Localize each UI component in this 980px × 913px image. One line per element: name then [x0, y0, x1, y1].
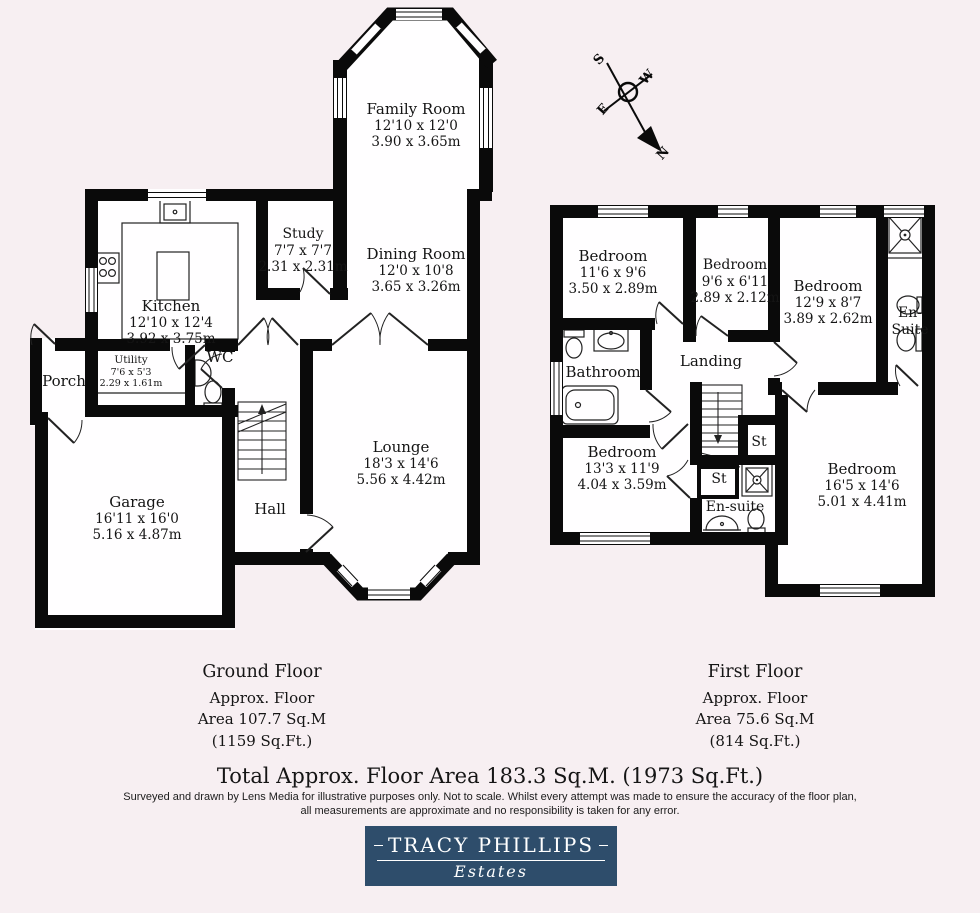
- room-dims-imperial: 12'10 x 12'4: [126, 315, 215, 331]
- room-dims-imperial: 11'6 x 9'6: [568, 265, 657, 281]
- room-name: Lounge: [356, 438, 445, 456]
- disclaimer: Surveyed and drawn by Lens Media for ill…: [123, 790, 857, 819]
- room-dims-imperial: 12'0 x 10'8: [367, 263, 466, 279]
- room-name: Hall: [254, 500, 286, 518]
- room-label-wc: WC: [207, 348, 234, 366]
- room-label-hall: Hall: [254, 500, 286, 518]
- room-name: Bedroom: [577, 443, 666, 461]
- room-label-porch: Porch: [42, 372, 86, 390]
- first-floor-title-block: First Floor Approx. Floor Area 75.6 Sq.M…: [696, 662, 815, 752]
- room-dims-metric: 2.89 x 2.12m: [690, 290, 779, 306]
- room-label-bedroom3: Bedroom 12'9 x 8'7 3.89 x 2.62m: [783, 277, 872, 327]
- logo-ornament-line: [599, 845, 608, 846]
- room-label-bedroom4: Bedroom 13'3 x 11'9 4.04 x 3.59m: [577, 443, 666, 493]
- floorplan-page: S W E N Family Room 12'10 x 12'0 3.90 x …: [0, 0, 980, 913]
- floor-area-sqm: Area 75.6 Sq.M: [696, 709, 815, 730]
- room-label-dining-room: Dining Room 12'0 x 10'8 3.65 x 3.26m: [367, 245, 466, 295]
- room-name: WC: [207, 348, 234, 366]
- room-dims-metric: 3.89 x 2.62m: [783, 311, 872, 327]
- room-dims-metric: 2.29 x 1.61m: [100, 378, 163, 389]
- room-name: Bedroom: [568, 247, 657, 265]
- room-dims-metric: 3.50 x 2.89m: [568, 281, 657, 297]
- room-name: Dining Room: [367, 245, 466, 263]
- room-dims-imperial: 7'6 x 5'3: [100, 367, 163, 378]
- room-label-study: Study 7'7 x 7'7 2.31 x 2.31m: [258, 226, 347, 275]
- room-name: Landing: [680, 352, 742, 370]
- disclaimer-line-2: all measurements are approximate and no …: [123, 804, 857, 818]
- ground-floor-title-block: Ground Floor Approx. Floor Area 107.7 Sq…: [198, 662, 326, 752]
- floor-approx-line: Approx. Floor: [198, 688, 326, 709]
- room-dims-imperial: 13'3 x 11'9: [577, 461, 666, 477]
- room-name: Suite: [892, 322, 929, 339]
- room-label-landing: Landing: [680, 352, 742, 370]
- room-label-garage: Garage 16'11 x 16'0 5.16 x 4.87m: [92, 493, 181, 543]
- logo-division-name: Estates: [365, 862, 617, 881]
- room-name: St: [711, 471, 726, 488]
- room-name: Garage: [92, 493, 181, 511]
- room-label-kitchen: Kitchen 12'10 x 12'4 3.92 x 3.75m: [126, 297, 215, 347]
- room-name: Family Room: [367, 100, 466, 118]
- compass-south-label: S: [591, 51, 608, 68]
- room-dims-metric: 3.65 x 3.26m: [367, 279, 466, 295]
- room-dims-imperial: 9'6 x 6'11: [690, 274, 779, 290]
- floor-area-sqft: (814 Sq.Ft.): [696, 731, 815, 752]
- room-dims-imperial: 16'5 x 14'6: [817, 478, 906, 494]
- room-dims-metric: 5.01 x 4.41m: [817, 494, 906, 510]
- room-label-bedroom5: Bedroom 16'5 x 14'6 5.01 x 4.41m: [817, 460, 906, 510]
- room-label-ensuite-top: En- Suite: [892, 305, 929, 339]
- room-name: Porch: [42, 372, 86, 390]
- room-dims-metric: 5.16 x 4.87m: [92, 527, 181, 543]
- room-name: Bedroom: [783, 277, 872, 295]
- room-dims-imperial: 7'7 x 7'7: [258, 243, 347, 259]
- compass-west-label: W: [636, 67, 658, 89]
- room-label-bedroom1: Bedroom 11'6 x 9'6 3.50 x 2.89m: [568, 247, 657, 297]
- room-name: Utility: [100, 354, 163, 367]
- room-name: Bedroom: [817, 460, 906, 478]
- total-floor-area: Total Approx. Floor Area 183.3 Sq.M. (19…: [217, 764, 763, 788]
- room-label-lounge: Lounge 18'3 x 14'6 5.56 x 4.42m: [356, 438, 445, 488]
- room-label-bedroom2: Bedroom 9'6 x 6'11 2.89 x 2.12m: [690, 257, 779, 306]
- floor-title: First Floor: [696, 662, 815, 682]
- room-name: Study: [258, 226, 347, 243]
- room-dims-metric: 4.04 x 3.59m: [577, 477, 666, 493]
- room-label-ensuite-bottom: En-suite: [706, 499, 765, 516]
- room-name: Bedroom: [690, 257, 779, 274]
- logo-brand-name: TRACY PHILLIPS: [388, 833, 594, 857]
- room-dims-metric: 5.56 x 4.42m: [356, 472, 445, 488]
- room-dims-imperial: 16'11 x 16'0: [92, 511, 181, 527]
- logo-ornament-line: [374, 845, 383, 846]
- disclaimer-line-1: Surveyed and drawn by Lens Media for ill…: [123, 790, 857, 804]
- room-label-family-room: Family Room 12'10 x 12'0 3.90 x 3.65m: [367, 100, 466, 150]
- room-label-st-upper: St: [751, 434, 766, 451]
- agency-logo: TRACY PHILLIPS Estates: [365, 826, 617, 886]
- room-name: En-: [892, 305, 929, 322]
- compass-rose: S W E N: [591, 51, 673, 163]
- room-dims-imperial: 12'10 x 12'0: [367, 118, 466, 134]
- room-name: En-suite: [706, 499, 765, 516]
- floor-area-sqm: Area 107.7 Sq.M: [198, 709, 326, 730]
- floor-area-sqft: (1159 Sq.Ft.): [198, 731, 326, 752]
- floor-title: Ground Floor: [198, 662, 326, 682]
- room-name: St: [751, 434, 766, 451]
- compass-east-label: E: [595, 101, 613, 118]
- room-label-utility: Utility 7'6 x 5'3 2.29 x 1.61m: [100, 354, 163, 389]
- room-dims-metric: 3.92 x 3.75m: [126, 331, 215, 347]
- room-dims-metric: 3.90 x 3.65m: [367, 134, 466, 150]
- logo-divider-line: [377, 860, 605, 861]
- room-name: Kitchen: [126, 297, 215, 315]
- room-label-bathroom: Bathroom: [565, 363, 640, 381]
- floor-approx-line: Approx. Floor: [696, 688, 815, 709]
- room-dims-metric: 2.31 x 2.31m: [258, 259, 347, 275]
- room-name: Bathroom: [565, 363, 640, 381]
- room-dims-imperial: 12'9 x 8'7: [783, 295, 872, 311]
- room-label-st-lower: St: [711, 471, 726, 488]
- room-dims-imperial: 18'3 x 14'6: [356, 456, 445, 472]
